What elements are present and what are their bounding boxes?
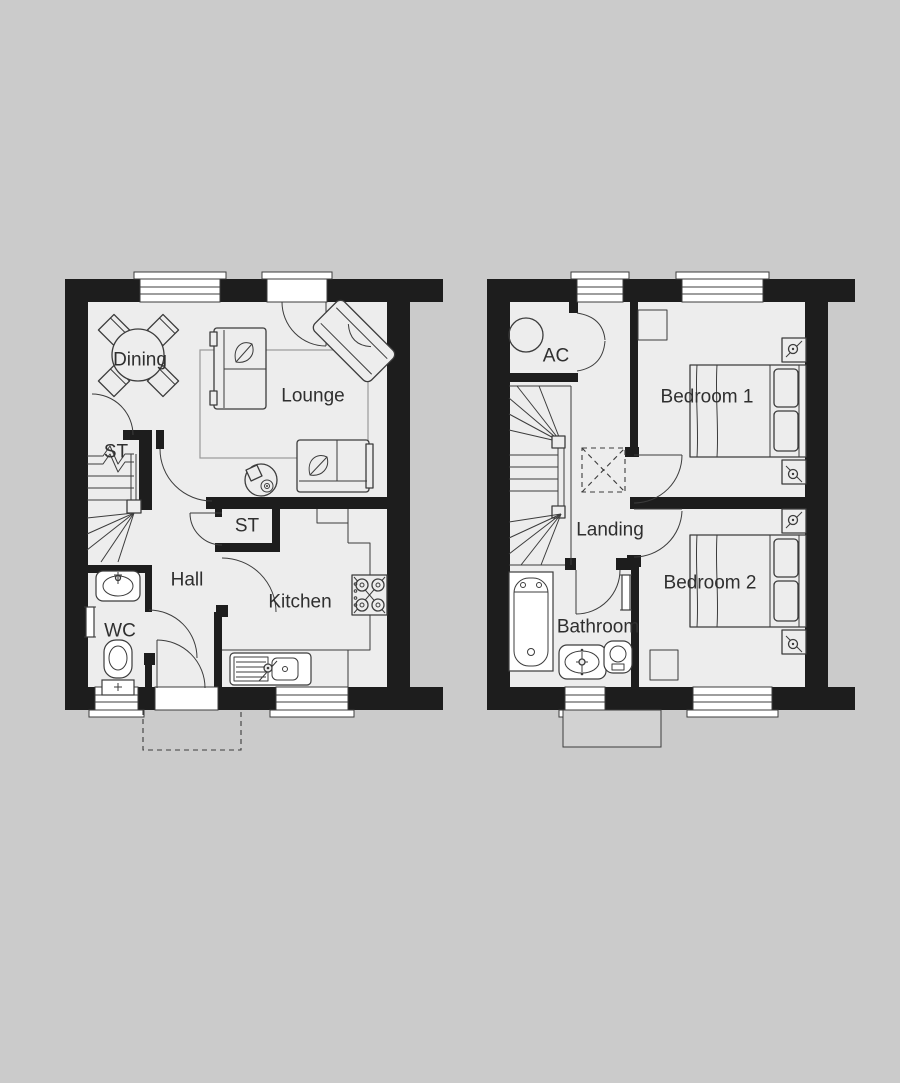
wc-basin (96, 571, 140, 601)
room-label-store-understairs: ST (104, 442, 129, 463)
room-label-kitchen: Kitchen (268, 592, 331, 613)
room-label-landing: Landing (576, 520, 644, 541)
bedside-table (782, 338, 806, 362)
bathroom-basin (559, 645, 606, 679)
entrance-canopy-outline (143, 710, 241, 750)
ground-floor-plan: Dining Lounge ST ST Hall WC Kitchen (65, 272, 443, 750)
room-label-wc: WC (104, 621, 136, 642)
bedroom1-window (676, 272, 769, 302)
hob (352, 575, 387, 615)
room-label-store-hall: ST (235, 516, 260, 537)
room-label-bedroom2: Bedroom 2 (664, 573, 757, 594)
bedside-table (782, 630, 806, 654)
room-label-airing-cupboard: AC (543, 346, 569, 367)
room-label-dining: Dining (113, 350, 167, 371)
kitchen-window (270, 687, 354, 717)
room-label-bathroom: Bathroom (557, 617, 639, 638)
side-table (245, 464, 277, 496)
wc-radiator (84, 607, 96, 637)
bathtub (509, 572, 553, 671)
room-label-lounge: Lounge (281, 386, 344, 407)
room-label-hall: Hall (171, 570, 204, 591)
bedside-table (782, 460, 806, 484)
sofa-large (210, 328, 266, 409)
kitchen-sink (230, 653, 311, 685)
first-floor-plan: AC Bedroom 1 Landing Bathroom Bedroom 2 (487, 272, 855, 747)
bathroom-radiator (620, 575, 632, 610)
bedside-table (782, 509, 806, 533)
floorplan-drawing: Dining Lounge ST ST Hall WC Kitchen (0, 0, 900, 1083)
sofa-small (297, 440, 373, 492)
floorplan-canvas: Dining Lounge ST ST Hall WC Kitchen (0, 0, 900, 1083)
dining-window (134, 272, 226, 302)
bedroom2-window (687, 687, 778, 717)
bed-1 (690, 365, 806, 457)
room-label-bedroom1: Bedroom 1 (661, 387, 754, 408)
wc-toilet (102, 640, 134, 695)
ac-window (571, 272, 629, 302)
porch-roof-outline (563, 710, 661, 747)
bathroom-toilet (604, 641, 632, 673)
